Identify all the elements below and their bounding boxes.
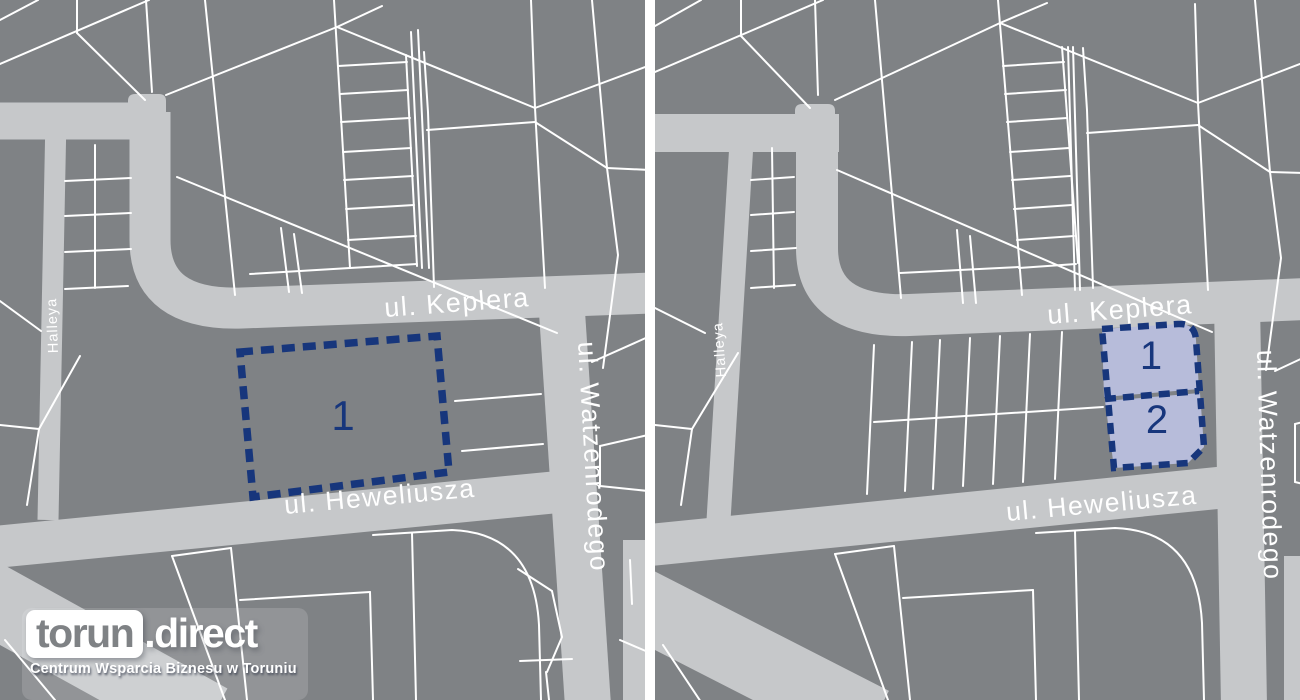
logo-brand-box: torun <box>26 610 143 658</box>
parcel-lines <box>655 0 1300 700</box>
map-panel-variant-2: 1 2 ul. Keplera ul. Heweliusza ul. Watze… <box>655 0 1300 700</box>
plot-1-number: 1 <box>331 392 354 439</box>
logo-tagline: Centrum Wsparcia Biznesu w Toruniu <box>30 661 297 677</box>
map-image-variant-2: 1 2 ul. Keplera ul. Heweliusza ul. Watze… <box>655 0 1300 700</box>
street-label-halleya: Halleya <box>44 298 62 354</box>
plot-1-number: 1 <box>1140 334 1162 378</box>
logo-brand-secondary: .direct <box>144 611 257 658</box>
logo-brand-primary: torun <box>36 610 133 656</box>
map-image-variant-1: 1 ul. Keplera ul. Heweliusza ul. Watzenr… <box>0 0 645 700</box>
map-panel-variant-1: 1 ul. Keplera ul. Heweliusza ul. Watzenr… <box>0 0 645 700</box>
plot-2-number: 2 <box>1146 398 1168 442</box>
logo: torun .direct Centrum Wsparcia Biznesu w… <box>26 610 297 677</box>
page: 1 ul. Keplera ul. Heweliusza ul. Watzenr… <box>0 0 1300 700</box>
